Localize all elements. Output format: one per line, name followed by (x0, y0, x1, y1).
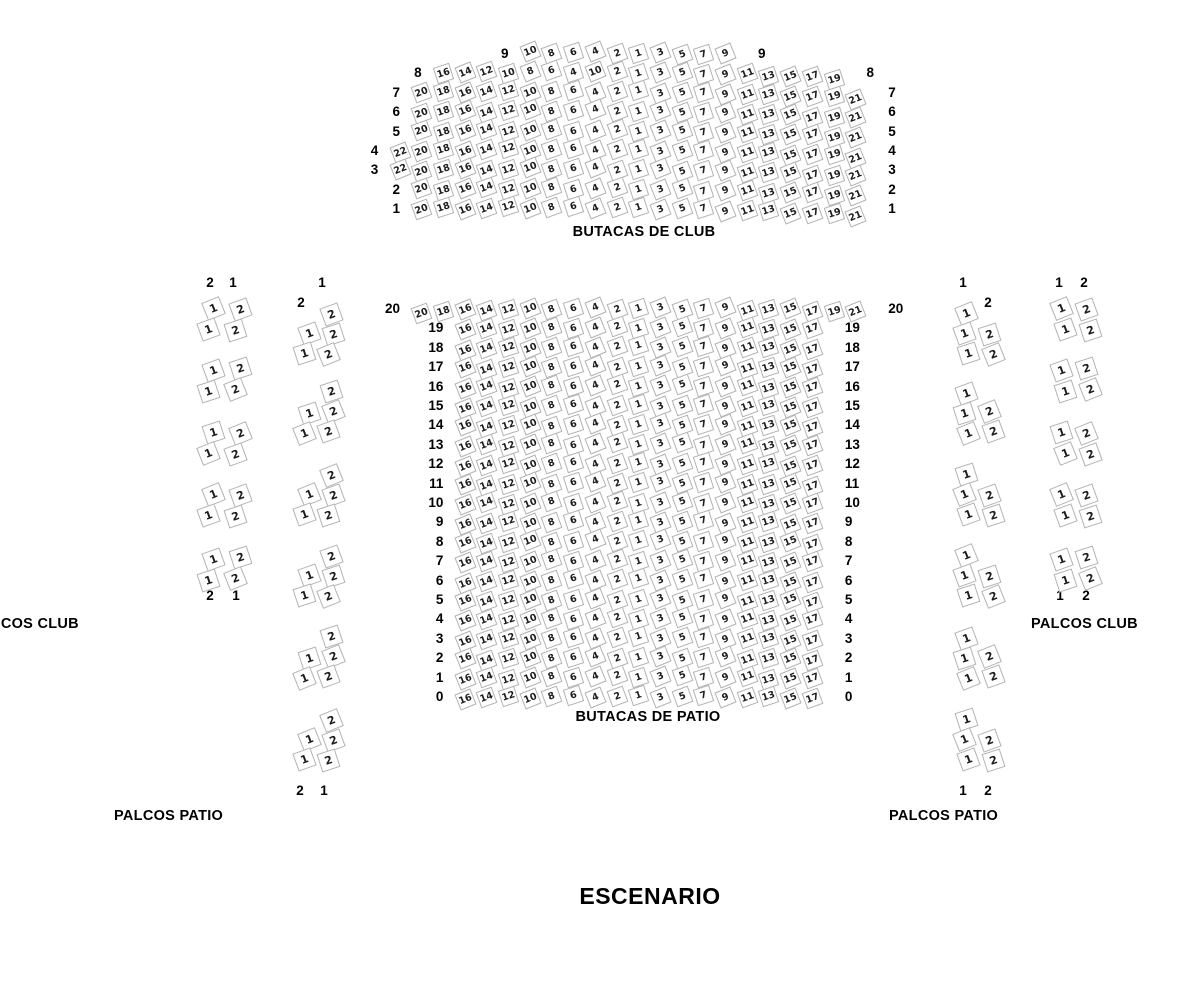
seat[interactable]: 2 (316, 342, 341, 367)
seat[interactable]: 1 (196, 317, 220, 341)
seat[interactable]: 1 (1049, 547, 1073, 571)
seat[interactable]: 2 (316, 419, 340, 443)
seat[interactable]: 2 (316, 748, 340, 772)
seat[interactable]: 2 (228, 297, 252, 321)
palcos-section: 2121121212121212121212121221212122121221… (0, 0, 1200, 1000)
seat[interactable]: 2 (1078, 318, 1102, 342)
seat[interactable]: 2 (319, 624, 343, 648)
seat[interactable]: 1 (292, 583, 316, 607)
seat[interactable]: 2 (316, 584, 341, 609)
seat[interactable]: 1 (196, 441, 221, 466)
seat[interactable]: 1 (201, 358, 225, 382)
seat[interactable]: 1 (954, 626, 978, 650)
seat[interactable]: 2 (1078, 566, 1103, 591)
seat[interactable]: 2 (223, 504, 247, 528)
seat[interactable]: 1 (292, 666, 317, 691)
row-label: 1 (225, 588, 247, 603)
row-label: 2 (1073, 275, 1095, 290)
row-label: 1 (952, 783, 974, 798)
seat[interactable]: 2 (316, 664, 340, 688)
seat[interactable]: 2 (223, 377, 248, 402)
seat[interactable]: 2 (1074, 297, 1098, 321)
seat[interactable]: 2 (319, 379, 343, 403)
row-label: 1 (952, 275, 974, 290)
row-label: 1 (1048, 275, 1070, 290)
row-label: 1 (311, 275, 333, 290)
row-label: 2 (977, 295, 999, 310)
seat[interactable]: 1 (196, 379, 220, 403)
row-label: 1 (313, 783, 335, 798)
seat[interactable]: 1 (201, 547, 225, 571)
seat[interactable]: 1 (1053, 379, 1077, 403)
seat[interactable]: 1 (196, 503, 220, 527)
seat[interactable]: 1 (954, 381, 978, 405)
seat[interactable]: 1 (292, 421, 317, 446)
seat[interactable]: 1 (1053, 441, 1078, 466)
row-label: 2 (290, 295, 312, 310)
seat[interactable]: 2 (1078, 377, 1103, 402)
seat[interactable]: 1 (292, 747, 316, 771)
seating-map: BUTACAS DE CLUB BUTACAS DE PATIO PALCOS … (0, 0, 1200, 1000)
seat[interactable]: 1 (292, 502, 316, 526)
seat[interactable]: 2 (228, 483, 252, 507)
row-label: 2 (977, 783, 999, 798)
row-label: 2 (199, 275, 221, 290)
seat[interactable]: 2 (1074, 483, 1098, 507)
seat[interactable]: 2 (1078, 504, 1102, 528)
row-label: 1 (222, 275, 244, 290)
seat[interactable]: 2 (316, 503, 340, 527)
seat[interactable]: 1 (292, 341, 316, 365)
seat[interactable]: 1 (1049, 358, 1073, 382)
seat[interactable]: 2 (223, 318, 247, 342)
seat[interactable]: 2 (223, 442, 247, 466)
row-label: 2 (289, 783, 311, 798)
seat[interactable]: 2 (223, 566, 248, 591)
